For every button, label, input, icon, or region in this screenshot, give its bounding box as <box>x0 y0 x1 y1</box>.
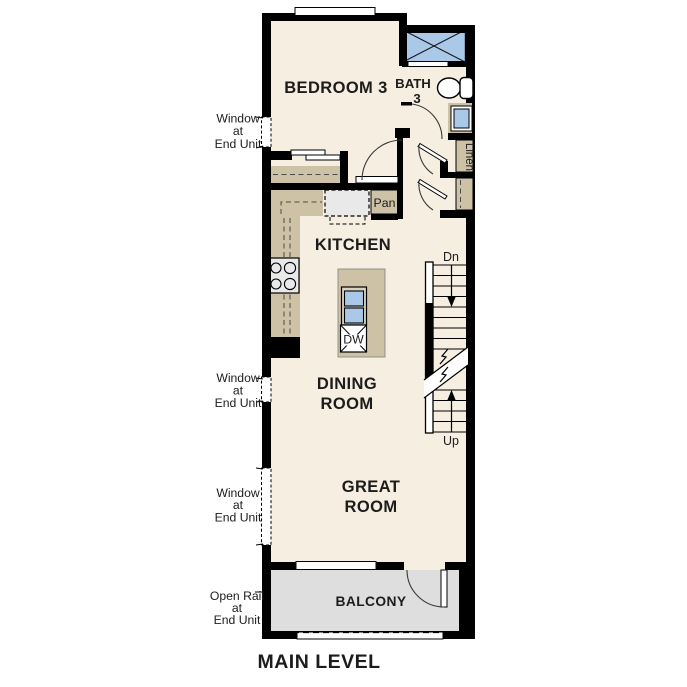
bath3-label-line2: 3 <box>413 91 420 106</box>
closet-bypass-door-2 <box>306 155 340 160</box>
stairs-down-label: Dn <box>443 250 459 264</box>
balcony-window <box>296 562 376 570</box>
bath3-label-line1: BATH <box>395 76 431 91</box>
open-rail-annotation: Open Rail at End Unit <box>210 589 264 627</box>
bath-door-leaf <box>401 102 412 106</box>
toilet-bowl-icon <box>438 78 461 98</box>
shower-door <box>408 62 448 67</box>
window-annotation-2: Window at End Unit <box>215 371 262 410</box>
window-annotation-1: Window at End Unit <box>215 112 262 152</box>
bath-top-wall <box>399 25 475 33</box>
window-anno-text: End Unit <box>215 511 262 525</box>
kitchen-counter-top <box>271 190 323 216</box>
floor-plan-page: BEDROOM 3 BATH 3 KITCHEN DINING ROOM GRE… <box>0 0 687 687</box>
balcony-door-opening <box>404 562 445 570</box>
pantry-label: Pan <box>374 196 396 210</box>
dining-label-line2: ROOM <box>321 395 374 413</box>
kitchen-top-wall <box>262 183 403 190</box>
shower <box>402 29 466 63</box>
open-rail-anno-text: End Unit <box>214 613 261 627</box>
sink-basin <box>345 291 364 306</box>
bedroom-bath-divider <box>399 21 407 66</box>
balcony-right-wall <box>459 562 475 639</box>
bedroom-bottom-wall <box>262 151 292 160</box>
refrigerator <box>325 190 369 216</box>
sink-basin <box>345 308 364 323</box>
hall-closet <box>456 178 473 210</box>
balcony-rail <box>283 632 457 639</box>
dishwasher-label: DW <box>343 333 364 347</box>
bedroom3-label: BEDROOM 3 <box>284 79 388 97</box>
balcony-door-leaf <box>441 570 447 607</box>
bedroom-top-window <box>295 8 375 16</box>
end-unit-window-3 <box>262 468 272 545</box>
great-label-line1: GREAT <box>342 478 401 496</box>
great-label-line2: ROOM <box>345 498 398 516</box>
bedroom-closet-shelf <box>271 166 340 183</box>
stairs-up-label: Up <box>443 434 459 448</box>
linen-label: Linen <box>463 143 475 171</box>
end-unit-window-2 <box>262 377 272 402</box>
dining-label-line1: DINING <box>317 375 377 393</box>
floor-plan-drawing: BEDROOM 3 BATH 3 KITCHEN DINING ROOM GRE… <box>0 0 687 687</box>
window-anno-text: End Unit <box>215 137 262 151</box>
window-anno-text: End Unit <box>215 396 262 410</box>
stair-top-wall <box>440 210 475 218</box>
vanity-sink-basin <box>454 109 469 128</box>
end-unit-window-1 <box>262 117 272 147</box>
window-annotation-3: Window at End Unit <box>215 486 262 525</box>
toilet-tank-icon <box>460 78 473 99</box>
kitchen-label: KITCHEN <box>315 236 391 254</box>
window-anno-text: at <box>233 124 244 138</box>
hall-closet-stub <box>440 161 448 178</box>
counter-end-chase <box>262 337 300 358</box>
vanity-bottom-wall <box>448 133 475 140</box>
linen-bottom-wall <box>448 172 475 178</box>
page-title: MAIN LEVEL <box>257 651 380 673</box>
hall-wall-stub <box>395 128 410 138</box>
closet-bypass-door-1 <box>291 150 325 155</box>
balcony-label: BALCONY <box>335 594 406 609</box>
pantry-bottom-wall <box>371 214 398 220</box>
